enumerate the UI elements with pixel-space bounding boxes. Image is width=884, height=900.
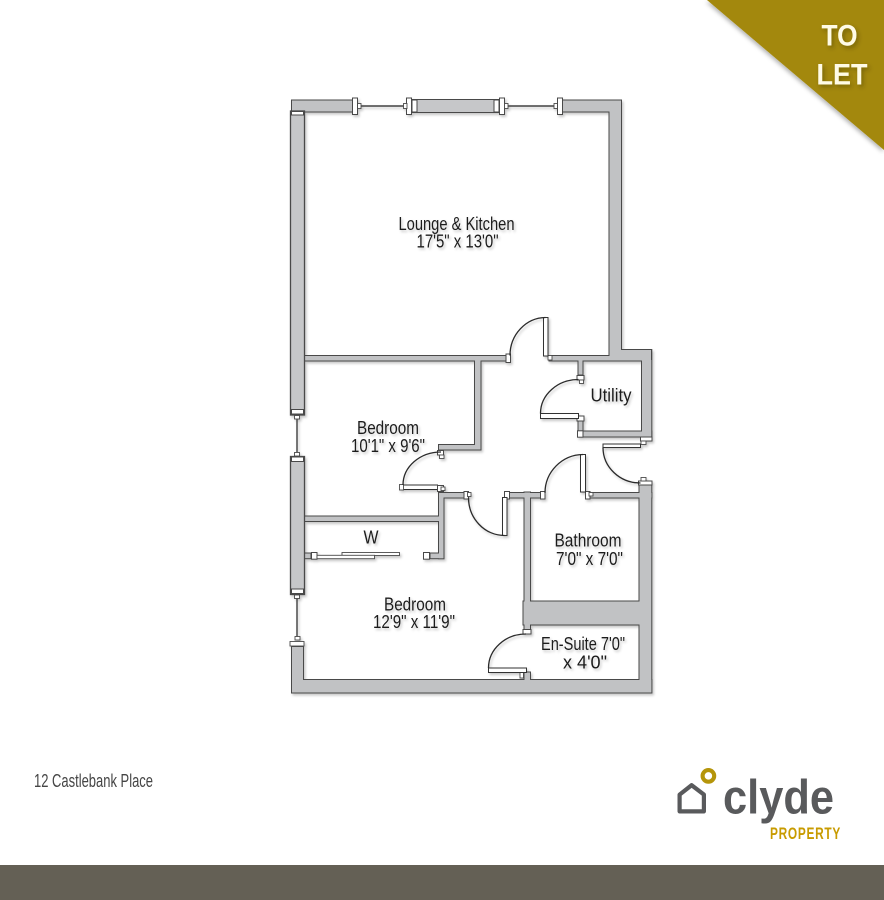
- svg-text:Bathroom: Bathroom: [555, 531, 622, 551]
- svg-text:12 Castlebank Place: 12 Castlebank Place: [34, 771, 153, 791]
- svg-text:10'1" x 9'6": 10'1" x 9'6": [351, 436, 425, 456]
- svg-text:W: W: [364, 528, 379, 548]
- svg-text:PROPERTY: PROPERTY: [770, 824, 841, 843]
- svg-text:TO: TO: [822, 20, 858, 53]
- svg-text:LET: LET: [817, 59, 868, 92]
- svg-text:12'9" x 11'9": 12'9" x 11'9": [373, 612, 455, 632]
- svg-text:17'5" x 13'0": 17'5" x 13'0": [417, 232, 499, 252]
- svg-text:En-Suite 7'0": En-Suite 7'0": [541, 634, 625, 654]
- svg-text:x 4'0": x 4'0": [563, 653, 607, 673]
- svg-text:clyde: clyde: [723, 772, 834, 825]
- svg-text:7'0" x 7'0": 7'0" x 7'0": [556, 549, 623, 569]
- svg-text:Bedroom: Bedroom: [357, 418, 419, 438]
- svg-text:Utility: Utility: [591, 386, 632, 406]
